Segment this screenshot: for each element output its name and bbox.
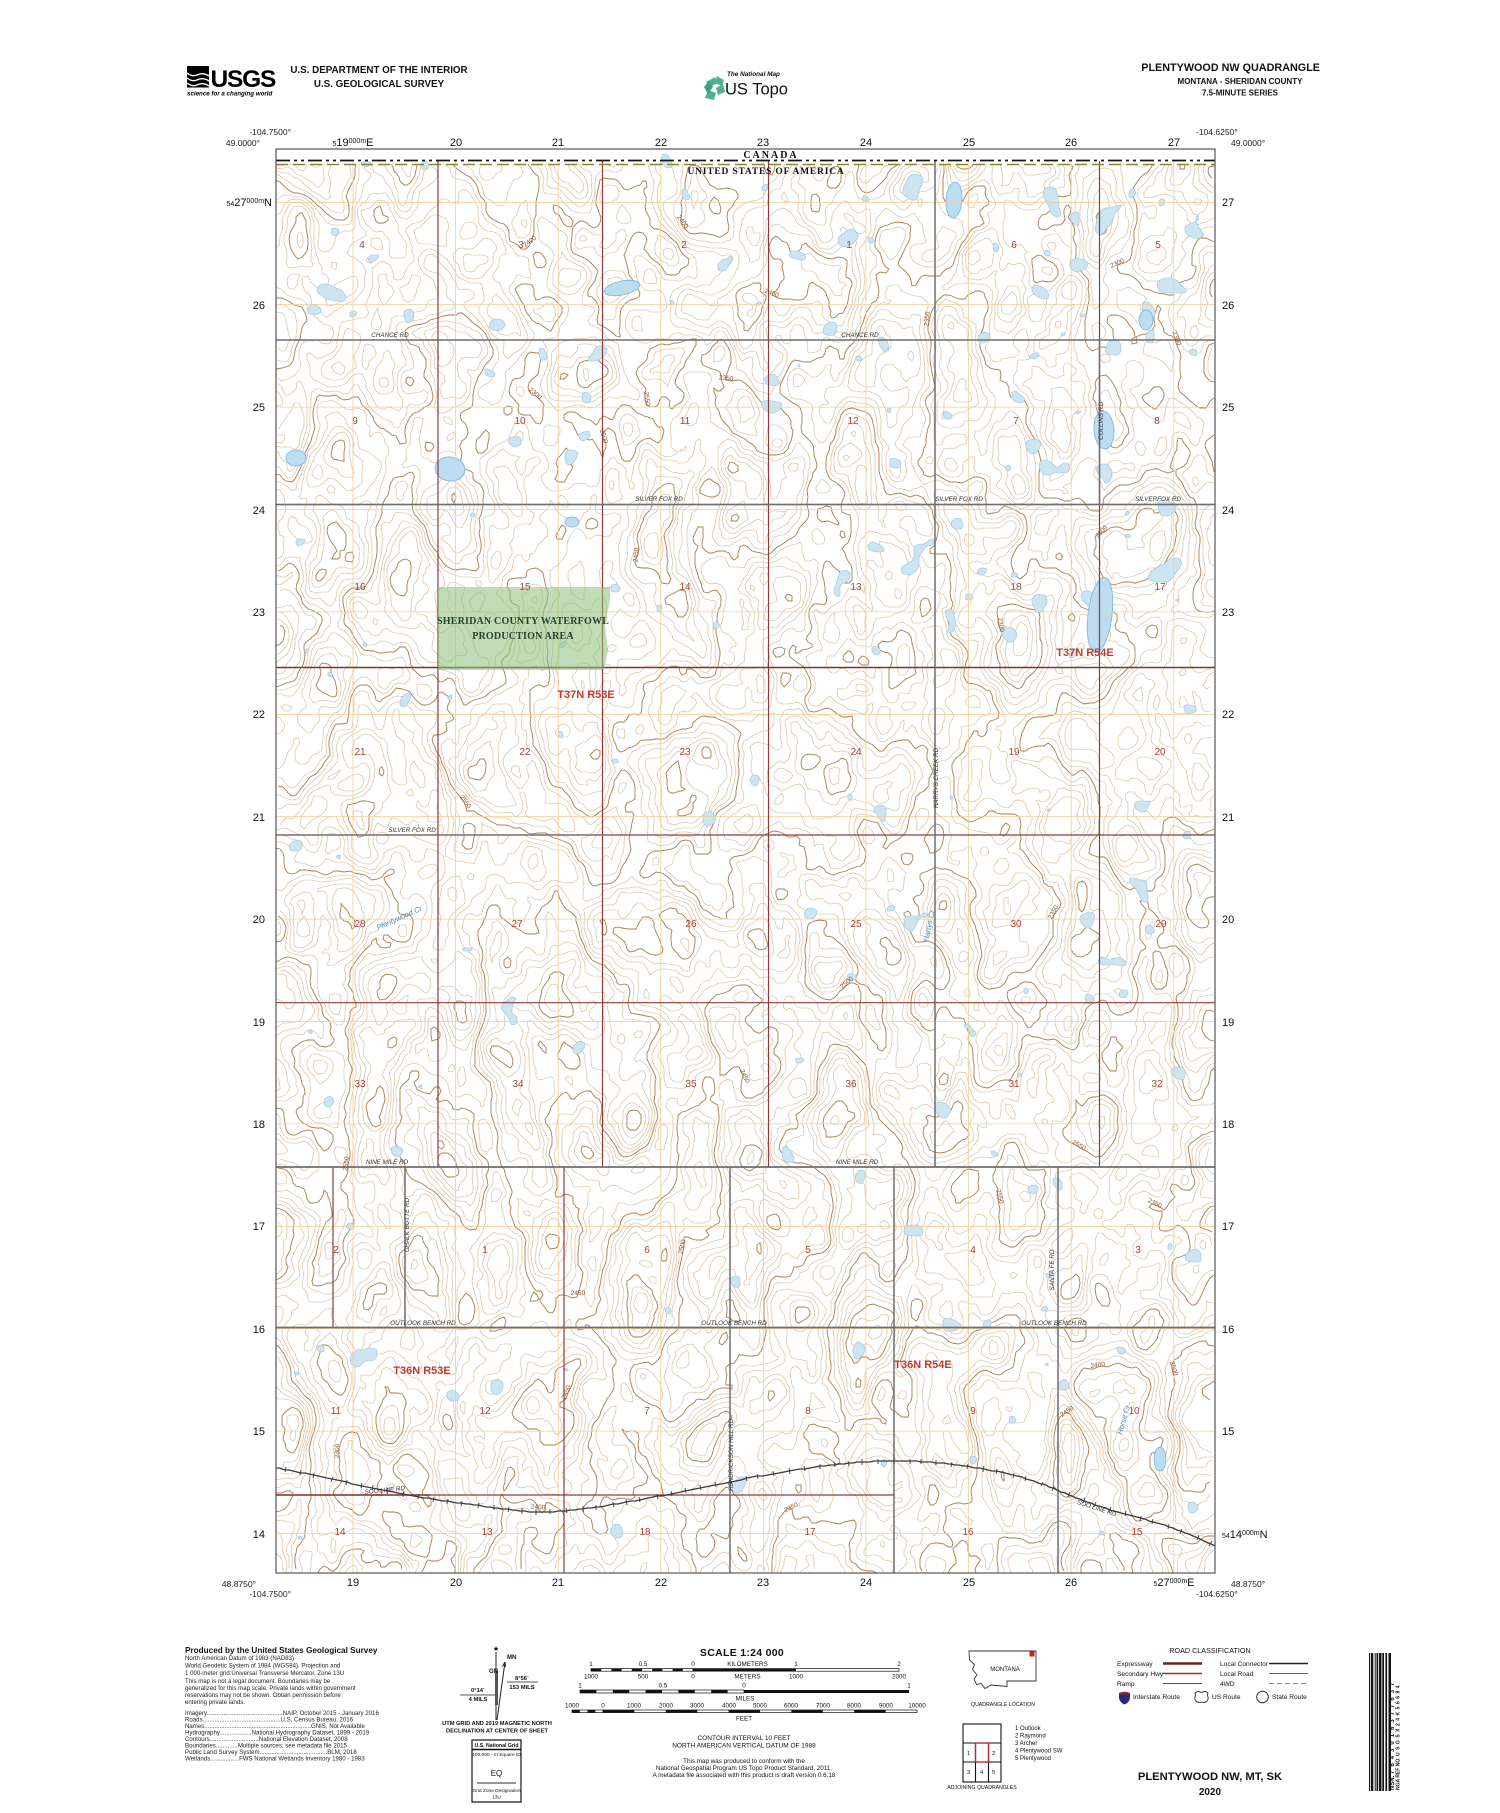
svg-text:19: 19 <box>1222 1017 1234 1029</box>
svg-text:Local Connector: Local Connector <box>1220 1661 1269 1668</box>
svg-text:100,000 - m Square ID: 100,000 - m Square ID <box>472 1752 521 1758</box>
svg-text:22: 22 <box>519 747 531 758</box>
svg-text:17: 17 <box>253 1221 265 1233</box>
svg-text:8: 8 <box>1154 416 1160 427</box>
svg-text:T37N R54E: T37N R54E <box>1056 647 1113 659</box>
svg-text:5 Plentywood: 5 Plentywood <box>1015 1756 1051 1762</box>
svg-text:23: 23 <box>679 747 691 758</box>
svg-text:1: 1 <box>482 1245 488 1256</box>
svg-text:science for a changing world: science for a changing world <box>187 91 272 98</box>
svg-text:16: 16 <box>962 1527 974 1538</box>
svg-text:9: 9 <box>352 416 358 427</box>
svg-text:COLLINS RD: COLLINS RD <box>1098 402 1105 440</box>
svg-text:13: 13 <box>481 1527 493 1538</box>
svg-text:11: 11 <box>331 1406 342 1417</box>
svg-text:18: 18 <box>639 1527 651 1538</box>
svg-text:31: 31 <box>1008 1079 1020 1090</box>
svg-text:0: 0 <box>691 1661 695 1668</box>
svg-text:24: 24 <box>1222 505 1234 517</box>
svg-text:T36N R53E: T36N R53E <box>393 1365 450 1377</box>
svg-text:1: 1 <box>967 1751 970 1757</box>
svg-text:17: 17 <box>1154 582 1166 593</box>
svg-text:17: 17 <box>1222 1221 1234 1233</box>
svg-text:24: 24 <box>860 1577 872 1589</box>
svg-text:GN: GN <box>489 1669 498 1675</box>
svg-text:48.8750°: 48.8750° <box>222 1579 256 1589</box>
svg-text:METERS: METERS <box>734 1674 760 1681</box>
svg-text:19: 19 <box>1008 747 1020 758</box>
svg-text:48.8750°: 48.8750° <box>1231 1579 1265 1589</box>
svg-text:ROAD CLASSIFICATION: ROAD CLASSIFICATION <box>1169 1646 1250 1655</box>
svg-text:1 Outlook: 1 Outlook <box>1015 1726 1042 1732</box>
svg-text:Produced by the United States: Produced by the United States Geological… <box>185 1646 378 1655</box>
svg-text:A metadata file associated wit: A metadata file associated with this pro… <box>653 1772 836 1779</box>
svg-text:21: 21 <box>552 1577 564 1589</box>
svg-text:16: 16 <box>354 582 366 593</box>
svg-text:1000: 1000 <box>789 1674 804 1681</box>
svg-text:UTM GRID AND 2019 MAGNETIC NOR: UTM GRID AND 2019 MAGNETIC NORTH <box>442 1721 552 1727</box>
svg-text:CHANCE RD: CHANCE RD <box>841 332 879 339</box>
svg-text:2450: 2450 <box>571 1290 586 1297</box>
svg-text:15: 15 <box>1222 1426 1234 1438</box>
svg-text:8000: 8000 <box>847 1703 862 1710</box>
svg-text:24: 24 <box>860 137 872 149</box>
svg-text:21: 21 <box>552 137 564 149</box>
svg-text:Interstate Route: Interstate Route <box>1133 1694 1180 1701</box>
svg-text:11: 11 <box>680 416 691 427</box>
svg-text:3000: 3000 <box>690 1703 705 1710</box>
svg-text:22: 22 <box>655 137 667 149</box>
svg-text:153 MILS: 153 MILS <box>509 1685 534 1691</box>
svg-text:OUTLOOK BENCH RD: OUTLOOK BENCH RD <box>1021 1320 1087 1327</box>
svg-text:8: 8 <box>805 1406 811 1417</box>
svg-text:18: 18 <box>1010 582 1022 593</box>
svg-text:Ramp: Ramp <box>1117 1681 1135 1688</box>
svg-text:4: 4 <box>359 240 365 251</box>
svg-text:U.S. GEOLOGICAL SURVEY: U.S. GEOLOGICAL SURVEY <box>314 79 445 90</box>
svg-text:ADJOINING QUADRANGLES: ADJOINING QUADRANGLES <box>947 1785 1017 1791</box>
svg-text:Secondary Hwy: Secondary Hwy <box>1117 1671 1164 1678</box>
svg-text:24: 24 <box>850 747 862 758</box>
svg-text:17: 17 <box>804 1527 816 1538</box>
svg-text:MILES: MILES <box>736 1696 755 1703</box>
svg-text:0.5: 0.5 <box>639 1661 648 1668</box>
svg-text:26: 26 <box>685 919 697 930</box>
svg-text:3 Archer: 3 Archer <box>1015 1741 1037 1747</box>
svg-text:14: 14 <box>253 1529 265 1541</box>
svg-text:SHERIDAN COUNTY WATERFOWL: SHERIDAN COUNTY WATERFOWL <box>437 616 609 627</box>
svg-text:National Geospatial Program US: National Geospatial Program US Topo Prod… <box>656 1765 832 1772</box>
svg-text:World Geodetic System of 1984: World Geodetic System of 1984 (WGS84). P… <box>185 1663 340 1670</box>
svg-text:27: 27 <box>1222 197 1234 209</box>
svg-text:7.5-MINUTE SERIES: 7.5-MINUTE SERIES <box>1202 89 1279 98</box>
svg-text:State Route: State Route <box>1272 1694 1307 1701</box>
svg-text:3: 3 <box>967 1770 970 1776</box>
svg-text:SILVER FOX RD: SILVER FOX RD <box>935 496 983 503</box>
svg-text:2020: 2020 <box>1199 1787 1222 1798</box>
svg-text:MN: MN <box>507 1655 516 1661</box>
svg-text:4 MILS: 4 MILS <box>469 1697 488 1703</box>
svg-text:29: 29 <box>1155 919 1167 930</box>
svg-text:7: 7 <box>1013 416 1019 427</box>
svg-text:SANTA FE RD: SANTA FE RD <box>1049 1249 1056 1290</box>
svg-text:1: 1 <box>589 1661 593 1668</box>
svg-text:PLENTYWOOD NW QUADRANGLE: PLENTYWOOD NW QUADRANGLE <box>1141 62 1320 74</box>
svg-text:30: 30 <box>1010 919 1022 930</box>
svg-text:QUADRANGLE LOCATION: QUADRANGLE LOCATION <box>971 1702 1035 1708</box>
svg-text:22: 22 <box>1222 709 1234 721</box>
svg-text:CHALK BUTTE RD: CHALK BUTTE RD <box>404 1197 411 1252</box>
svg-text:49.0000°: 49.0000° <box>1231 138 1265 148</box>
svg-text:2000: 2000 <box>892 1674 907 1681</box>
svg-text:23: 23 <box>1222 607 1234 619</box>
svg-text:16: 16 <box>1222 1324 1234 1336</box>
svg-text:20: 20 <box>1154 747 1166 758</box>
svg-text:1: 1 <box>794 1661 798 1668</box>
svg-text:36: 36 <box>845 1079 857 1090</box>
svg-text:CONTOUR INTERVAL 10 FEET: CONTOUR INTERVAL 10 FEET <box>698 1735 791 1742</box>
svg-text:CANADA: CANADA <box>743 150 798 161</box>
svg-text:generalized for this map scale: generalized for this map scale. Private … <box>185 1685 356 1692</box>
svg-text:4: 4 <box>970 1245 976 1256</box>
svg-text:18: 18 <box>1222 1119 1234 1131</box>
svg-text:4000: 4000 <box>722 1703 737 1710</box>
svg-text:NINE MILE RD: NINE MILE RD <box>836 1159 879 1166</box>
svg-text:1: 1 <box>578 1683 582 1690</box>
svg-text:0: 0 <box>742 1683 746 1690</box>
svg-text:-104.7500°: -104.7500° <box>249 127 291 137</box>
svg-text:26: 26 <box>253 300 265 312</box>
svg-text:23: 23 <box>757 137 769 149</box>
svg-text:-104.6250°: -104.6250° <box>1196 1589 1238 1599</box>
svg-text:33: 33 <box>354 1079 366 1090</box>
svg-text:7000: 7000 <box>816 1703 831 1710</box>
svg-text:500: 500 <box>638 1674 649 1681</box>
svg-text:22: 22 <box>655 1577 667 1589</box>
svg-text:2450: 2450 <box>633 547 641 562</box>
svg-text:12: 12 <box>847 416 859 427</box>
svg-text:2: 2 <box>992 1751 995 1757</box>
svg-text:5: 5 <box>992 1770 995 1776</box>
svg-text:Expressway: Expressway <box>1117 1661 1153 1668</box>
svg-text:9: 9 <box>970 1406 976 1417</box>
svg-text:PLENTYWOOD NW, MT, SK: PLENTYWOOD NW, MT, SK <box>1138 1771 1282 1783</box>
svg-text:CHANCE RD: CHANCE RD <box>371 332 409 339</box>
svg-text:North American Datum of 1983 (: North American Datum of 1983 (NAD83) <box>185 1655 294 1662</box>
svg-text:35: 35 <box>685 1079 697 1090</box>
svg-text:21: 21 <box>354 747 366 758</box>
svg-text:20: 20 <box>450 137 462 149</box>
svg-text:HENDRICKSON HILL RD: HENDRICKSON HILL RD <box>728 1418 735 1491</box>
svg-text:20: 20 <box>1222 914 1234 926</box>
svg-text:SCALE 1:24 000: SCALE 1:24 000 <box>700 1647 784 1659</box>
svg-text:22: 22 <box>253 709 265 721</box>
svg-text:5000: 5000 <box>753 1703 768 1710</box>
svg-text:6: 6 <box>1011 240 1017 251</box>
svg-text:SILVER FOX RD: SILVER FOX RD <box>388 827 436 834</box>
svg-text:2000: 2000 <box>659 1703 674 1710</box>
svg-text:34: 34 <box>512 1079 524 1090</box>
svg-text:25: 25 <box>963 137 975 149</box>
svg-text:2: 2 <box>333 1245 339 1256</box>
svg-text:5: 5 <box>805 1245 811 1256</box>
svg-text:2400: 2400 <box>531 1504 546 1512</box>
svg-text:23: 23 <box>757 1577 769 1589</box>
svg-text:UNITED STATES OF AMERICA: UNITED STATES OF AMERICA <box>687 167 844 177</box>
svg-text:7: 7 <box>644 1406 650 1417</box>
svg-text:Grid Zone Designation: Grid Zone Designation <box>473 1788 521 1794</box>
svg-text:24: 24 <box>253 505 265 517</box>
svg-text:27: 27 <box>1168 137 1180 149</box>
svg-text:14: 14 <box>679 582 691 593</box>
svg-text:-104.7500°: -104.7500° <box>249 1589 291 1599</box>
svg-text:26: 26 <box>1065 1577 1077 1589</box>
svg-text:SILVER FOX RD: SILVER FOX RD <box>635 496 683 503</box>
svg-text:13U: 13U <box>492 1795 501 1801</box>
svg-text:1000: 1000 <box>584 1674 599 1681</box>
svg-text:5: 5 <box>1155 240 1161 251</box>
svg-text:PRODUCTION AREA: PRODUCTION AREA <box>472 631 574 642</box>
svg-text:MONTANA - SHERIDAN COUNTY: MONTANA - SHERIDAN COUNTY <box>1178 77 1304 86</box>
svg-text:2: 2 <box>897 1661 901 1668</box>
svg-text:6: 6 <box>644 1245 650 1256</box>
svg-text:25: 25 <box>850 919 862 930</box>
svg-text:U.S. National Grid: U.S. National Grid <box>474 1743 518 1749</box>
svg-text:0: 0 <box>691 1674 695 1681</box>
svg-text:T36N R54E: T36N R54E <box>894 1359 951 1371</box>
svg-text:DECLINATION AT CENTER OF SHEET: DECLINATION AT CENTER OF SHEET <box>446 1729 548 1735</box>
svg-text:This map is not a legal docume: This map is not a legal document. Bounda… <box>185 1678 331 1685</box>
svg-text:16: 16 <box>253 1324 265 1336</box>
svg-text:entering private lands.: entering private lands. <box>185 1699 245 1706</box>
svg-text:NGA REF NO. USGSX24K56684: NGA REF NO. USGSX24K56684 <box>1396 1683 1402 1790</box>
svg-text:32: 32 <box>1151 1079 1163 1090</box>
svg-text:reservations may not be shown.: reservations may not be shown. Obtain pe… <box>185 1692 341 1699</box>
svg-text:25: 25 <box>963 1577 975 1589</box>
svg-text:US Route: US Route <box>1212 1694 1241 1701</box>
svg-text:15: 15 <box>519 582 531 593</box>
svg-text:Local Road: Local Road <box>1220 1671 1254 1678</box>
svg-text:26: 26 <box>1222 300 1234 312</box>
svg-text:12: 12 <box>479 1406 491 1417</box>
svg-text:4 Plentywood SW: 4 Plentywood SW <box>1015 1749 1063 1755</box>
svg-text:2: 2 <box>681 240 687 251</box>
svg-text:USGS: USGS <box>211 66 276 93</box>
svg-text:FEET: FEET <box>736 1716 752 1723</box>
svg-text:25: 25 <box>253 402 265 414</box>
svg-text:The National Map: The National Map <box>727 71 780 78</box>
svg-text:-104.6250°: -104.6250° <box>1196 127 1238 137</box>
svg-text:3: 3 <box>1135 1245 1141 1256</box>
svg-text:21: 21 <box>253 812 265 824</box>
svg-text:19: 19 <box>347 1577 359 1589</box>
svg-text:27: 27 <box>511 919 523 930</box>
svg-text:HARRYS CREEK RD: HARRYS CREEK RD <box>933 747 940 808</box>
svg-text:19: 19 <box>253 1017 265 1029</box>
svg-text:4WD: 4WD <box>1220 1681 1235 1688</box>
svg-text:OUTLOOK BENCH RD: OUTLOOK BENCH RD <box>701 1320 767 1327</box>
svg-text:0.5: 0.5 <box>659 1683 668 1690</box>
svg-text:13: 13 <box>850 582 862 593</box>
svg-text:NINE MILE RD: NINE MILE RD <box>366 1159 409 1166</box>
svg-text:US Topo: US Topo <box>725 81 788 99</box>
svg-text:20: 20 <box>450 1577 462 1589</box>
svg-text:2350: 2350 <box>719 374 734 382</box>
svg-text:0°14´: 0°14´ <box>471 1688 485 1694</box>
svg-text:49.0000°: 49.0000° <box>226 138 260 148</box>
svg-text:SILVERFOX RD: SILVERFOX RD <box>1135 496 1181 503</box>
svg-text:28: 28 <box>354 919 366 930</box>
svg-text:14: 14 <box>334 1527 346 1538</box>
svg-text:21: 21 <box>1222 812 1234 824</box>
svg-text:This map was produced to confo: This map was produced to conform with th… <box>683 1758 805 1765</box>
svg-text:0: 0 <box>601 1703 605 1710</box>
svg-text:KILOMETERS: KILOMETERS <box>727 1661 768 1668</box>
svg-text:23: 23 <box>253 607 265 619</box>
svg-text:25: 25 <box>1222 402 1234 414</box>
svg-text:1000: 1000 <box>627 1703 642 1710</box>
svg-text:10000: 10000 <box>908 1703 926 1710</box>
svg-text:18: 18 <box>253 1119 265 1131</box>
svg-text:10: 10 <box>514 416 526 427</box>
svg-text:2300: 2300 <box>334 1443 341 1458</box>
svg-text:6000: 6000 <box>784 1703 799 1710</box>
svg-text:1 000-meter grid:Universal Tra: 1 000-meter grid:Universal Transverse Me… <box>185 1670 344 1677</box>
svg-text:15: 15 <box>253 1426 265 1438</box>
svg-text:T37N R53E: T37N R53E <box>557 689 614 701</box>
svg-text:EQ: EQ <box>491 1769 503 1778</box>
svg-text:Wetlands.................FWS: Wetlands.................FWS National We… <box>185 1756 365 1763</box>
svg-text:8°56´: 8°56´ <box>515 1676 529 1682</box>
svg-text:15: 15 <box>1131 1527 1143 1538</box>
svg-text:1: 1 <box>907 1683 911 1690</box>
svg-text:NORTH AMERICAN VERTICAL DATUM: NORTH AMERICAN VERTICAL DATUM OF 1988 <box>672 1743 816 1750</box>
svg-text:26: 26 <box>1065 137 1077 149</box>
svg-text:★: ★ <box>493 1645 499 1653</box>
svg-text:20: 20 <box>253 914 265 926</box>
svg-text:2 Raymond: 2 Raymond <box>1015 1734 1046 1740</box>
svg-text:U.S. DEPARTMENT OF THE INTERIO: U.S. DEPARTMENT OF THE INTERIOR <box>290 65 467 76</box>
svg-text:9000: 9000 <box>879 1703 894 1710</box>
svg-text:1000: 1000 <box>565 1703 580 1710</box>
svg-text:1: 1 <box>846 240 852 251</box>
svg-text:MONTANA: MONTANA <box>990 1667 1020 1673</box>
svg-text:OUTLOOK BENCH RD: OUTLOOK BENCH RD <box>390 1320 456 1327</box>
